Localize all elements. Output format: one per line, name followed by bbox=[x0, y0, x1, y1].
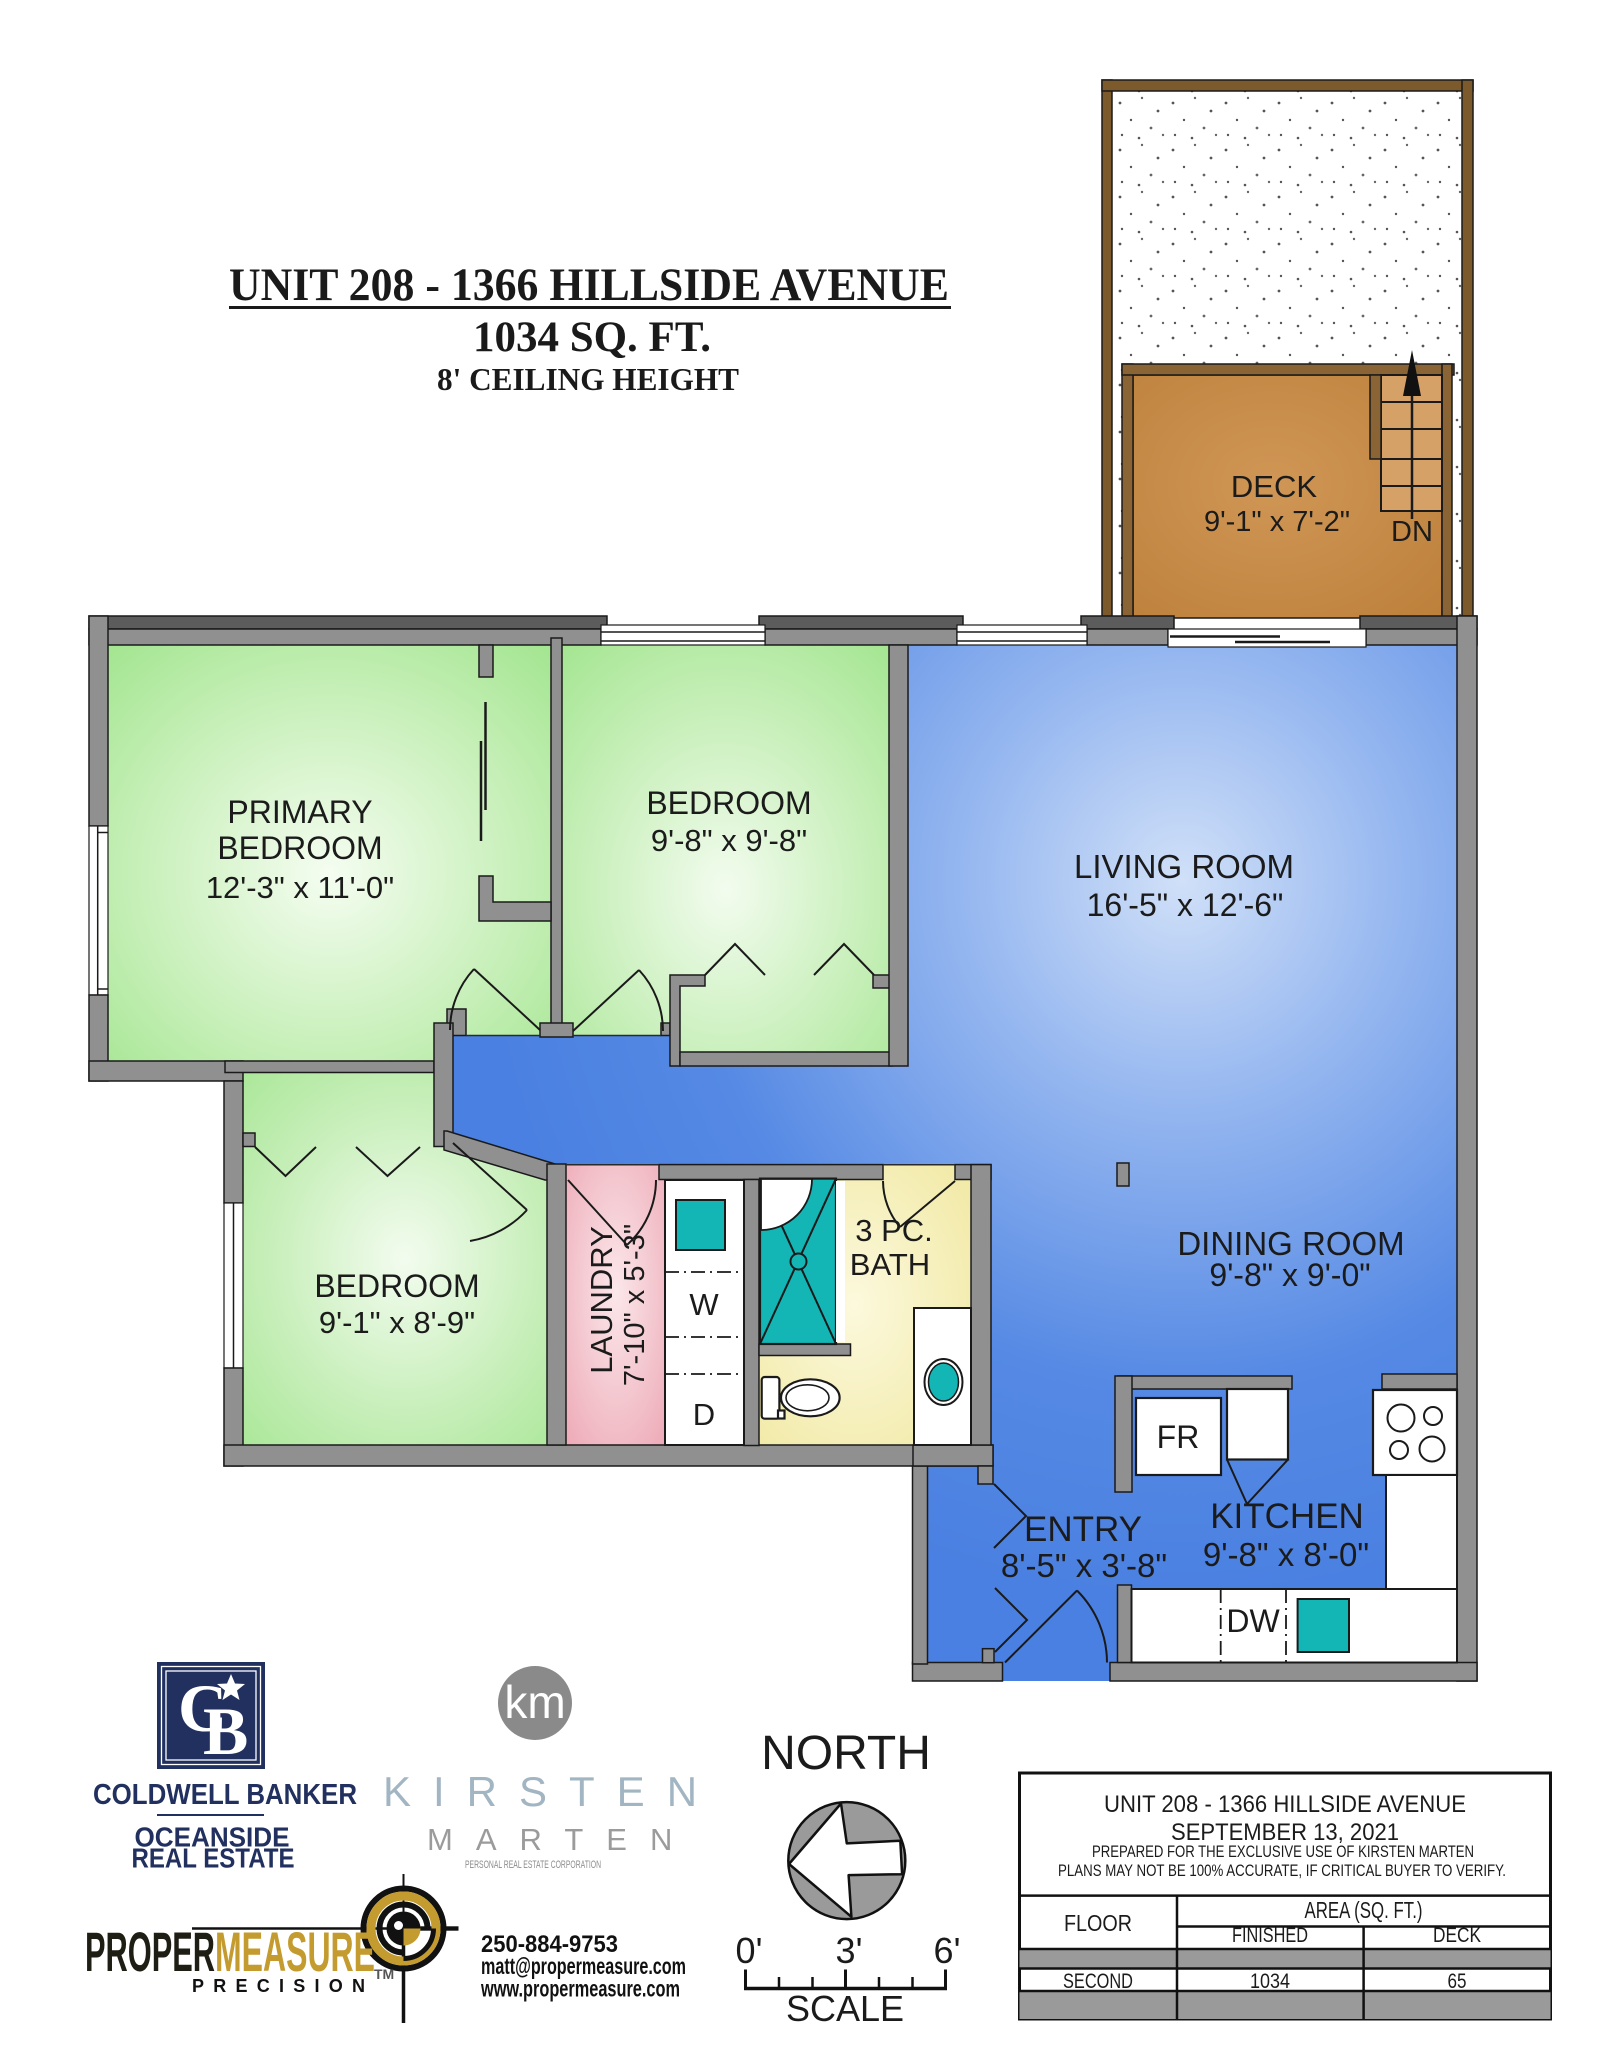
svg-text:UNIT 208 - 1366 HILLSIDE AVENU: UNIT 208 - 1366 HILLSIDE AVENUE bbox=[1104, 1791, 1466, 1818]
svg-text:3': 3' bbox=[836, 1930, 863, 1971]
svg-text:BEDROOM: BEDROOM bbox=[314, 1268, 479, 1304]
svg-text:FR: FR bbox=[1157, 1419, 1200, 1455]
svg-text:BATH: BATH bbox=[850, 1247, 930, 1282]
svg-text:16'-5" x 12'-6": 16'-5" x 12'-6" bbox=[1087, 887, 1284, 923]
svg-text:65: 65 bbox=[1448, 1970, 1467, 1993]
svg-text:9'-8" x 9'-8": 9'-8" x 9'-8" bbox=[651, 823, 807, 858]
svg-text:PREPARED FOR THE EXCLUSIVE USE: PREPARED FOR THE EXCLUSIVE USE OF KIRSTE… bbox=[1092, 1843, 1474, 1861]
svg-text:PERSONAL REAL ESTATE CORPORATI: PERSONAL REAL ESTATE CORPORATION bbox=[465, 1859, 601, 1871]
svg-text:FLOOR: FLOOR bbox=[1064, 1910, 1132, 1936]
svg-text:KIRSTEN: KIRSTEN bbox=[383, 1768, 719, 1815]
svg-text:km: km bbox=[504, 1676, 565, 1728]
svg-text:BEDROOM: BEDROOM bbox=[646, 785, 811, 821]
svg-text:3 PC.: 3 PC. bbox=[855, 1213, 933, 1248]
svg-text:SCALE: SCALE bbox=[786, 1988, 904, 2029]
svg-text:SECOND: SECOND bbox=[1063, 1970, 1133, 1993]
svg-text:6': 6' bbox=[934, 1930, 961, 1971]
svg-text:9'-8" x 9'-0": 9'-8" x 9'-0" bbox=[1209, 1257, 1370, 1293]
svg-text:PROPER: PROPER bbox=[85, 1920, 215, 1983]
svg-text:D: D bbox=[693, 1397, 715, 1432]
svg-text:ENTRY: ENTRY bbox=[1024, 1510, 1142, 1549]
svg-text:www.propermeasure.com: www.propermeasure.com bbox=[480, 1976, 680, 2002]
svg-text:0': 0' bbox=[736, 1930, 763, 1971]
svg-text:DECK: DECK bbox=[1433, 1924, 1481, 1947]
svg-text:1034: 1034 bbox=[1250, 1970, 1290, 1993]
svg-text:LAUNDRY: LAUNDRY bbox=[584, 1226, 619, 1374]
svg-text:LIVING ROOM: LIVING ROOM bbox=[1074, 848, 1294, 885]
svg-text:AREA (SQ. FT.): AREA (SQ. FT.) bbox=[1305, 1897, 1423, 1923]
svg-text:B: B bbox=[203, 1693, 248, 1769]
svg-text:7'-10" x 5'-3": 7'-10" x 5'-3" bbox=[619, 1224, 651, 1386]
svg-text:8'-5" x 3'-8": 8'-5" x 3'-8" bbox=[1001, 1547, 1167, 1584]
svg-text:SEPTEMBER 13, 2021: SEPTEMBER 13, 2021 bbox=[1171, 1819, 1399, 1846]
svg-text:NORTH: NORTH bbox=[761, 1727, 931, 1780]
svg-text:9'-8" x 8'-0": 9'-8" x 8'-0" bbox=[1203, 1536, 1369, 1573]
svg-text:DN: DN bbox=[1391, 516, 1433, 548]
svg-text:TM: TM bbox=[374, 1966, 394, 1982]
svg-text:DECK: DECK bbox=[1231, 469, 1317, 504]
svg-text:MARTEN: MARTEN bbox=[427, 1822, 695, 1857]
svg-text:PRIMARY: PRIMARY bbox=[227, 794, 372, 830]
svg-text:1034 SQ. FT.: 1034 SQ. FT. bbox=[473, 314, 711, 361]
svg-text:8' CEILING HEIGHT: 8' CEILING HEIGHT bbox=[437, 361, 739, 397]
svg-text:9'-1" x 8'-9": 9'-1" x 8'-9" bbox=[319, 1305, 475, 1340]
svg-text:BEDROOM: BEDROOM bbox=[217, 830, 382, 866]
svg-text:UNIT 208 - 1366 HILLSIDE AVENU: UNIT 208 - 1366 HILLSIDE AVENUE bbox=[229, 259, 949, 311]
svg-text:KITCHEN: KITCHEN bbox=[1210, 1497, 1364, 1536]
svg-text:PLANS MAY NOT BE 100% ACCURATE: PLANS MAY NOT BE 100% ACCURATE, IF CRITI… bbox=[1058, 1862, 1506, 1880]
svg-text:REAL ESTATE: REAL ESTATE bbox=[132, 1843, 295, 1874]
svg-text:FINISHED: FINISHED bbox=[1232, 1924, 1308, 1947]
svg-text:PRECISION: PRECISION bbox=[192, 1976, 375, 1996]
svg-text:9'-1" x 7'-2": 9'-1" x 7'-2" bbox=[1204, 506, 1350, 538]
svg-text:COLDWELL BANKER: COLDWELL BANKER bbox=[93, 1779, 357, 1811]
svg-text:MEASURE: MEASURE bbox=[215, 1920, 375, 1983]
svg-text:12'-3" x 11'-0": 12'-3" x 11'-0" bbox=[206, 870, 394, 905]
svg-text:DW: DW bbox=[1226, 1603, 1280, 1639]
svg-text:W: W bbox=[689, 1287, 719, 1322]
